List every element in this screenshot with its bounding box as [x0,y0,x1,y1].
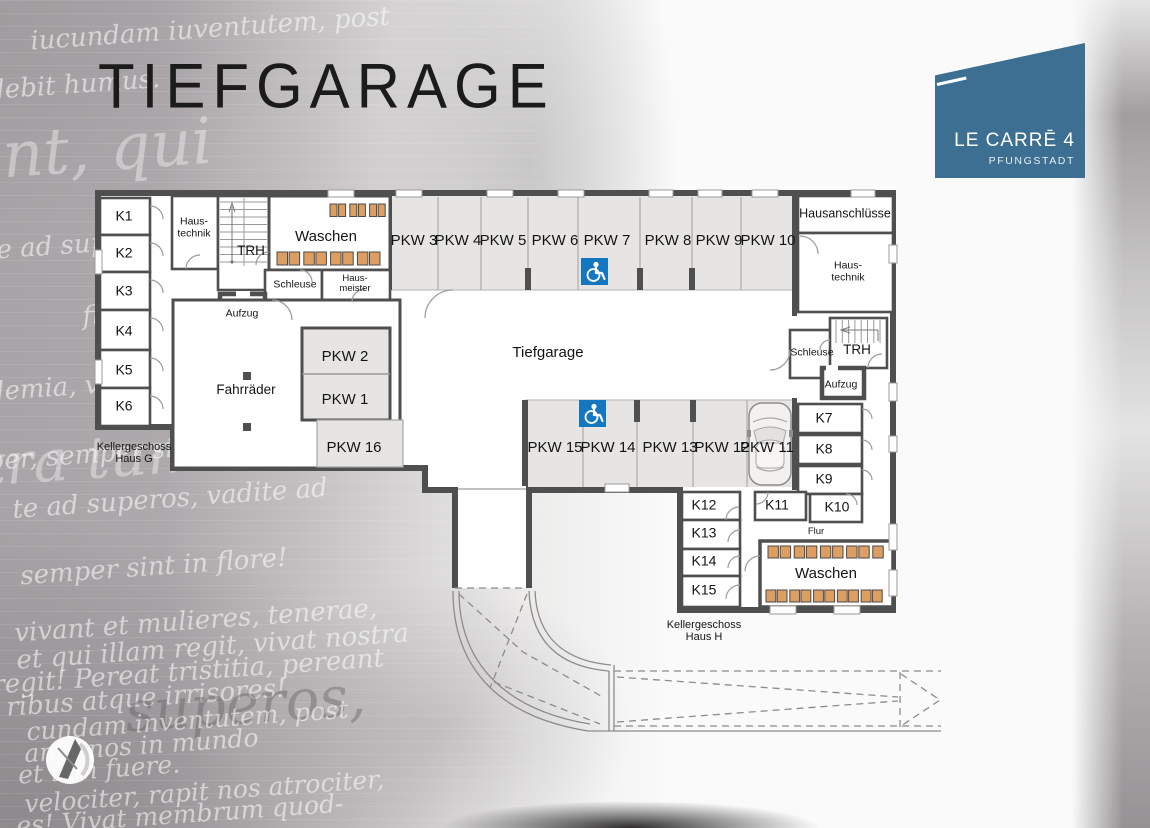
label-k3: K3 [115,284,132,299]
label-flur: Flur [808,527,824,537]
page-title: TIEFGARAGE [98,50,555,122]
label-trh-right: TRH [843,343,871,357]
page: iucundam iuventutem, post debit humus. n… [0,0,1150,828]
label-k5: K5 [115,363,132,378]
label-pkw-16: PKW 16 [326,440,381,456]
label-schleuse-left: Schleuse [273,279,316,290]
label-haustechnik-right-line1: Haus- [834,260,862,271]
pillar [243,423,251,431]
label-pkw-1: PKW 1 [322,392,369,408]
label-k6: K6 [115,399,132,414]
label-fahrraeder: Fahrräder [216,383,275,397]
garage-entrance-door [458,486,526,492]
label-k15: K15 [692,583,717,598]
label-pkw-9: PKW 9 [696,233,743,249]
label-k13: K13 [692,526,717,541]
label-pkw-2: PKW 2 [322,349,369,365]
label-pkw-5: PKW 5 [480,233,527,249]
label-hausanschluesse: Hausanschlüsse [799,207,891,220]
label-k11: K11 [765,498,789,513]
label-pkw-10: PKW 10 [740,233,795,249]
caption-haus-g-line2: Haus G [115,454,152,466]
pillar [525,268,531,290]
caption-haus-h-line2: Haus H [686,632,723,644]
label-hausmeister-line2: meister [339,284,370,294]
label-k10: K10 [825,500,850,515]
wheelchair-icon [581,258,608,285]
label-pkw-7: PKW 7 [584,233,631,249]
label-waschen-top: Waschen [295,229,357,245]
label-k2: K2 [115,246,132,261]
label-aufzug-left: Aufzug [226,308,259,319]
label-k4: K4 [115,324,132,339]
label-k9: K9 [815,472,832,487]
label-pkw-11: PKW 11 [740,440,794,456]
aufzug-right-door-gap [826,365,838,371]
pillar [689,268,695,290]
label-k7: K7 [815,411,832,426]
wheelchair-icon [579,400,606,427]
label-k8: K8 [815,442,832,457]
label-pkw-8: PKW 8 [645,233,692,249]
aufzug-left-door-gap [236,291,250,297]
label-haustechnik-left-line2: technik [177,228,210,239]
pillar [634,400,640,422]
label-pkw-14: PKW 14 [580,440,635,456]
caption-haus-g-line1: Kellergeschoss [97,442,172,454]
label-trh-left: TRH [237,244,265,258]
label-k14: K14 [692,554,717,569]
label-haustechnik-left-line1: Haus- [180,216,208,227]
pillar [637,268,643,290]
label-waschen-bottom: Waschen [795,566,857,582]
label-schleuse-right: Schleuse [790,347,833,358]
label-tiefgarage: Tiefgarage [512,345,583,361]
label-pkw-15: PKW 15 [527,440,582,456]
label-k1: K1 [115,209,132,224]
label-aufzug-right: Aufzug [825,379,858,390]
pillar [690,400,696,422]
logo-name: LE CARRĒ 4 [954,130,1075,152]
label-k12: K12 [692,498,717,513]
logo-city: PFUNGSTADT [989,155,1075,167]
label-pkw-3: PKW 3 [391,233,438,249]
label-pkw-4: PKW 4 [435,233,482,249]
pillar [243,372,251,380]
label-pkw-13: PKW 13 [642,440,697,456]
label-haustechnik-right-line2: technik [831,272,864,283]
caption-haus-h-line1: Kellergeschoss [667,620,742,632]
logo-stripe-icon [937,77,967,86]
label-pkw-6: PKW 6 [532,233,579,249]
